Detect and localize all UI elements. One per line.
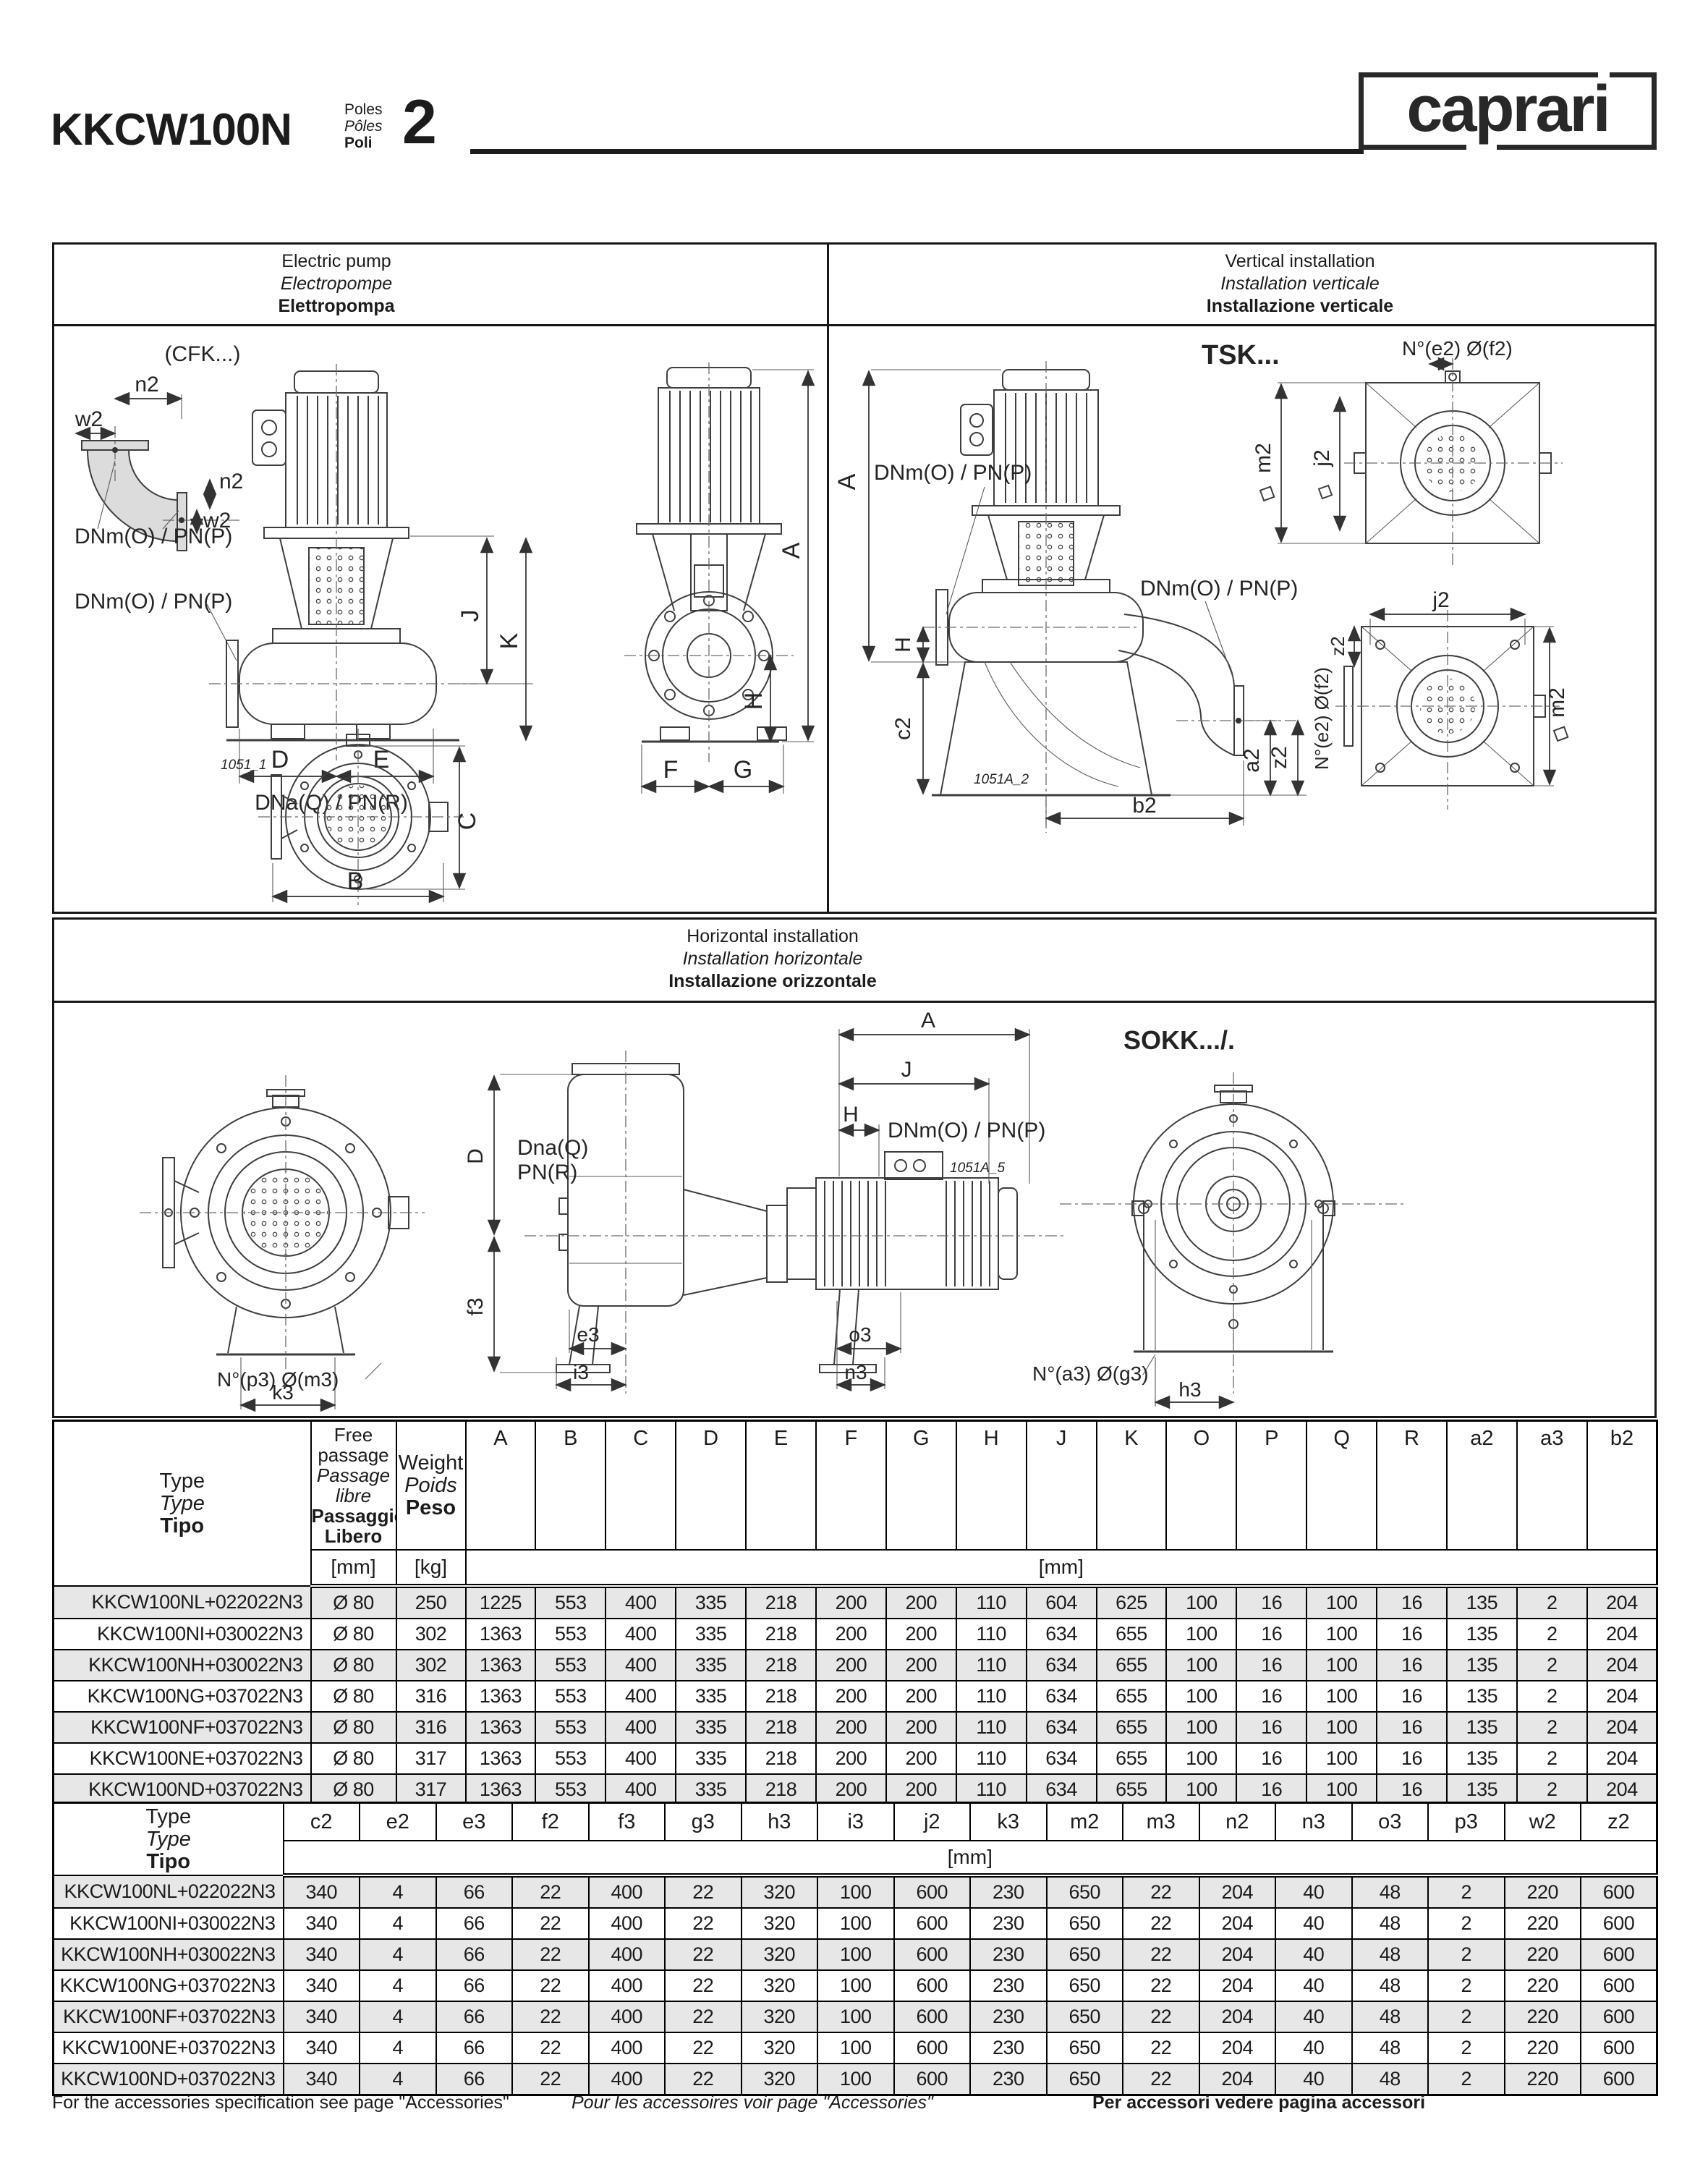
dim-cell: 204 (1199, 2001, 1276, 2032)
table2-body: KKCW100NL+022022N3 340 4 66 22 400 22 32… (54, 1875, 1657, 2095)
bolt-count-label-a3-g3: N°(a3) Ø(g3) (1032, 1362, 1149, 1385)
dim-cell: 100 (817, 1875, 894, 1908)
dim-cell: 204 (1199, 1908, 1276, 1939)
dim-cell: 2 (1517, 1774, 1587, 1806)
dim-cell: 2 (1517, 1586, 1587, 1619)
dim-cell: 22 (1123, 2001, 1199, 2032)
dim-cell: 400 (606, 1586, 676, 1619)
dim-cell: 600 (894, 1875, 971, 1908)
dim-cell: 1363 (466, 1650, 536, 1681)
poles-label-it: Poli (344, 135, 383, 151)
dim-cell: 100 (817, 1970, 894, 2001)
datasheet-page: KKCW100N Poles Pôles Poli 2 caprari Elec… (0, 0, 1708, 2180)
weight-it: Peso (397, 1497, 465, 1519)
dim-cell: 22 (665, 2032, 742, 2064)
dim-cell: 400 (589, 1875, 666, 1908)
dim-label-f3: f3 (464, 1297, 488, 1315)
dim-cell: 100 (1166, 1619, 1236, 1650)
unit-mm: [mm] (311, 1550, 396, 1586)
dim-cell: 110 (956, 1712, 1027, 1743)
dim-label-j2: j2 (1432, 588, 1449, 612)
col-header: w2 (1505, 1803, 1581, 1841)
dim-cell: 230 (970, 2032, 1047, 2064)
bolt-count-label-e2-f2: N°(e2) Ø(f2) (1402, 337, 1513, 360)
dim-label-c: C (454, 813, 481, 831)
dim-cell: 230 (970, 2064, 1047, 2095)
dim-cell: 48 (1352, 1875, 1429, 1908)
dim-cell: 22 (1123, 2032, 1199, 2064)
dim-cell: 655 (1097, 1650, 1167, 1681)
weight-cell: 302 (396, 1619, 466, 1650)
flange-plan-view-top (1260, 358, 1563, 565)
dim-cell: 2 (1428, 1875, 1505, 1908)
free-passage-cell: Ø 80 (311, 1712, 396, 1743)
dim-cell: 4 (360, 1970, 436, 2001)
dim-cell: 204 (1587, 1712, 1657, 1743)
type-header-fr: Type (54, 1493, 310, 1515)
dim-cell: 335 (676, 1650, 746, 1681)
dim-cell: 100 (1307, 1712, 1377, 1743)
dim-cell: 16 (1377, 1650, 1447, 1681)
dim-cell: 200 (886, 1712, 956, 1743)
weight-cell: 302 (396, 1650, 466, 1681)
dim-cell: 335 (676, 1712, 746, 1743)
dim-cell: 335 (676, 1681, 746, 1712)
type-header-en: Type (54, 1806, 283, 1828)
dim-cell: 200 (886, 1774, 956, 1806)
pump-type-cell: KKCW100NF+037022N3 (54, 2001, 284, 2032)
dim-cell: 600 (894, 1908, 971, 1939)
free-passage-en: Free (312, 1425, 396, 1445)
dim-cell: 218 (746, 1681, 816, 1712)
dim-label-h: H (891, 637, 915, 653)
dim-label-a: A (833, 473, 861, 490)
free-passage-it: Passaggio (312, 1506, 396, 1526)
table-row: KKCW100NF+037022N3 Ø 80 316 1363 553 400… (54, 1712, 1657, 1743)
dim-cell: 320 (742, 2032, 818, 2064)
table-row: KKCW100NL+022022N3 Ø 80 250 1225 553 400… (54, 1586, 1657, 1619)
col-header: k3 (970, 1803, 1047, 1841)
dim-cell: 200 (816, 1650, 886, 1681)
dim-cell: 400 (606, 1681, 676, 1712)
dim-cell: 100 (1166, 1743, 1236, 1774)
col-header: o3 (1352, 1803, 1429, 1841)
col-header: h3 (742, 1803, 818, 1841)
dim-cell: 230 (970, 2001, 1047, 2032)
poles-label-en: Poles (344, 101, 383, 118)
caprari-logo-text: caprari (1364, 77, 1652, 141)
dim-cell: 335 (676, 1619, 746, 1650)
pump-type-cell: KKCW100ND+037022N3 (54, 1774, 311, 1806)
free-passage-fr: Passage (312, 1465, 396, 1485)
caprari-logo: caprari (1359, 72, 1657, 150)
type-header-it: Tipo (54, 1515, 310, 1538)
dnm-pn-label: DNm(O) / PN(P) (75, 525, 232, 548)
dim-cell: 200 (886, 1681, 956, 1712)
dim-cell: 650 (1047, 2001, 1123, 2032)
dim-label-m2: m2 (1545, 687, 1569, 718)
dim-label-h: H (740, 692, 768, 711)
dim-label-b: B (347, 868, 364, 895)
table-row: KKCW100NE+037022N3 340 4 66 22 400 22 32… (54, 2032, 1657, 2064)
vertical-installation-drawing: TSK... (829, 326, 1654, 912)
weight-cell: 317 (396, 1774, 466, 1806)
dim-cell: 204 (1199, 2064, 1276, 2095)
dim-cell: 218 (746, 1774, 816, 1806)
dim-cell: 204 (1587, 1650, 1657, 1681)
dim-cell: 100 (817, 2001, 894, 2032)
dim-cell: 40 (1275, 1908, 1352, 1939)
dim-cell: 110 (956, 1743, 1027, 1774)
dim-cell: 1225 (466, 1586, 536, 1619)
dim-cell: 650 (1047, 1908, 1123, 1939)
dim-cell: 100 (1307, 1681, 1377, 1712)
dim-cell: 135 (1447, 1650, 1517, 1681)
col-header: z2 (1581, 1803, 1657, 1841)
dim-cell: 2 (1517, 1619, 1587, 1650)
table1-body: KKCW100NL+022022N3 Ø 80 250 1225 553 400… (54, 1586, 1657, 1806)
dim-cell: 110 (956, 1586, 1027, 1619)
dim-cell: 40 (1275, 2001, 1352, 2032)
dim-cell: 135 (1447, 1743, 1517, 1774)
dim-cell: 340 (284, 1908, 360, 1939)
dim-cell: 600 (894, 2032, 971, 2064)
dim-cell: 48 (1352, 2064, 1429, 2095)
col-header: Q (1307, 1421, 1377, 1551)
dim-cell: 100 (817, 1908, 894, 1939)
poles-label-fr: Pôles (344, 118, 383, 135)
col-header: H (956, 1421, 1027, 1551)
dim-cell: 22 (1123, 2064, 1199, 2095)
dim-cell: 22 (665, 1908, 742, 1939)
pump-type-cell: KKCW100NL+022022N3 (54, 1586, 311, 1619)
front-view (140, 1075, 425, 1409)
dim-cell: 204 (1587, 1681, 1657, 1712)
dim-cell: 40 (1275, 1970, 1352, 2001)
col-header: j2 (894, 1803, 971, 1841)
diagram-block-top: Electric pump Electropompe Elettropompa … (52, 242, 1657, 914)
col-header: F (816, 1421, 886, 1551)
dim-label-k3: k3 (272, 1381, 294, 1404)
poles-value: 2 (402, 87, 437, 158)
electric-pump-title-en: Electric pump (54, 250, 619, 273)
logo-border-gap (1466, 145, 1497, 150)
dim-cell: 634 (1027, 1650, 1097, 1681)
logo-border-gap (1598, 72, 1610, 77)
dim-cell: 100 (1307, 1774, 1377, 1806)
dim-cell: 340 (284, 1875, 360, 1908)
dim-cell: 2 (1428, 1908, 1505, 1939)
dim-label-c2: c2 (891, 717, 915, 740)
dim-cell: 22 (1123, 1875, 1199, 1908)
dim-cell: 16 (1236, 1650, 1307, 1681)
dim-cell: 100 (1307, 1619, 1377, 1650)
dim-cell: 400 (606, 1743, 676, 1774)
dim-cell: 553 (535, 1774, 606, 1806)
diagram-block-bottom: Horizontal installation Installation hor… (52, 917, 1657, 1418)
table-row: KKCW100NG+037022N3 Ø 80 316 1363 553 400… (54, 1681, 1657, 1712)
dim-cell: 66 (436, 1970, 513, 2001)
dim-cell: 100 (817, 2064, 894, 2095)
dim-cell: 200 (886, 1619, 956, 1650)
dim-cell: 22 (512, 2001, 589, 2032)
diagram-block-top-header: Electric pump Electropompe Elettropompa … (54, 245, 1654, 326)
dim-cell: 218 (746, 1650, 816, 1681)
pump-side-view (624, 362, 814, 794)
horizontal-title-it: Installazione orizzontale (54, 970, 1491, 993)
dim-cell: 135 (1447, 1619, 1517, 1650)
vertical-installation-title: Vertical installation Installation verti… (827, 245, 1654, 324)
dim-cell: 4 (360, 1908, 436, 1939)
dim-cell: 110 (956, 1619, 1027, 1650)
dim-cell: 655 (1097, 1743, 1167, 1774)
table-row: KKCW100NH+030022N3 340 4 66 22 400 22 32… (54, 1939, 1657, 1970)
dim-cell: 634 (1027, 1619, 1097, 1650)
free-passage-cell: Ø 80 (311, 1774, 396, 1806)
dim-cell: 22 (512, 1875, 589, 1908)
col-header: C (606, 1421, 676, 1551)
dim-cell: 200 (816, 1619, 886, 1650)
dim-cell: 634 (1027, 1681, 1097, 1712)
dim-cell: 650 (1047, 2064, 1123, 2095)
dim-cell: 2 (1428, 1970, 1505, 2001)
dim-cell: 200 (886, 1743, 956, 1774)
dim-cell: 22 (665, 2064, 742, 2095)
electric-pump-title-fr: Electropompe (54, 273, 619, 295)
drawing-ref-1051a-2: 1051A_2 (974, 772, 1029, 787)
dim-cell: 1363 (466, 1774, 536, 1806)
dim-cell: 340 (284, 1970, 360, 2001)
sokk-label: SOKK.../. (1123, 1025, 1235, 1055)
dim-cell: 204 (1587, 1774, 1657, 1806)
dim-cell: 22 (665, 1970, 742, 2001)
dim-cell: 110 (956, 1681, 1027, 1712)
col-header: R (1377, 1421, 1447, 1551)
dim-label-f: F (663, 756, 679, 784)
col-header: n3 (1275, 1803, 1352, 1841)
vertical-title-en: Vertical installation (946, 250, 1654, 273)
dim-cell: 655 (1097, 1619, 1167, 1650)
dim-cell: 135 (1447, 1586, 1517, 1619)
drawing-ref-1051a-5: 1051A_5 (950, 1161, 1006, 1176)
bolt-count-label-e2-f2: N°(e2) Ø(f2) (1311, 667, 1333, 770)
dim-cell: 22 (512, 2064, 589, 2095)
dim-cell: 16 (1236, 1681, 1307, 1712)
dim-cell: 40 (1275, 2064, 1352, 2095)
col-header: E (746, 1421, 816, 1551)
dim-cell: 553 (535, 1712, 606, 1743)
pump-type-cell: KKCW100NE+037022N3 (54, 2032, 284, 2064)
pump-type-cell: KKCW100NI+030022N3 (54, 1619, 311, 1650)
dim-cell: 400 (606, 1650, 676, 1681)
dim-cell: 16 (1377, 1619, 1447, 1650)
poles-label-block: Poles Pôles Poli (344, 101, 383, 151)
dim-cell: 218 (746, 1586, 816, 1619)
dim-label-h3: h3 (1178, 1378, 1201, 1401)
dim-label-d: D (271, 746, 289, 773)
dim-cell: 600 (1581, 1875, 1657, 1908)
table-row: KKCW100NG+037022N3 340 4 66 22 400 22 32… (54, 1970, 1657, 2001)
weight-cell: 316 (396, 1681, 466, 1712)
horizontal-title: Horizontal installation Installation hor… (54, 920, 1654, 1003)
dim-cell: 4 (360, 2064, 436, 2095)
electric-pump-drawing: (CFK...) n2 w2 n2 w2 DNm(O) / (54, 326, 827, 912)
dim-cell: 4 (360, 1875, 436, 1908)
col-header: G (886, 1421, 956, 1551)
unit-kg: [kg] (396, 1550, 466, 1586)
dim-cell: 553 (535, 1619, 606, 1650)
dim-cell: 400 (589, 1970, 666, 2001)
dim-cell: 600 (894, 2064, 971, 2095)
dim-cell: 100 (1166, 1586, 1236, 1619)
dim-cell: 553 (535, 1681, 606, 1712)
dim-cell: 220 (1505, 1970, 1581, 2001)
dim-cell: 335 (676, 1774, 746, 1806)
dim-cell: 66 (436, 1908, 513, 1939)
pump-type-cell: KKCW100NL+022022N3 (54, 1875, 284, 1908)
col-header: D (676, 1421, 746, 1551)
pump-type-cell: KKCW100NF+037022N3 (54, 1712, 311, 1743)
dim-cell: 340 (284, 2064, 360, 2095)
free-passage-en: passage (312, 1445, 396, 1465)
dim-cell: 2 (1428, 2032, 1505, 2064)
dim-cell: 16 (1236, 1774, 1307, 1806)
dim-cell: 625 (1097, 1586, 1167, 1619)
dim-cell: 204 (1587, 1619, 1657, 1650)
pump-type-cell: KKCW100NG+037022N3 (54, 1681, 311, 1712)
electric-pump-title: Electric pump Electropompe Elettropompa (54, 245, 827, 324)
dim-cell: 220 (1505, 1875, 1581, 1908)
dim-cell: 204 (1199, 1875, 1276, 1908)
dim-cell: 2 (1428, 1939, 1505, 1970)
dim-cell: 110 (956, 1774, 1027, 1806)
dim-cell: 16 (1236, 1586, 1307, 1619)
dim-cell: 4 (360, 2032, 436, 2064)
weight-cell: 317 (396, 1743, 466, 1774)
free-passage-cell: Ø 80 (311, 1681, 396, 1712)
table-row: KKCW100ND+037022N3 340 4 66 22 400 22 32… (54, 2064, 1657, 2095)
dim-cell: 48 (1352, 2032, 1429, 2064)
dim-cell: 48 (1352, 1939, 1429, 1970)
dim-cell: 22 (512, 2032, 589, 2064)
pump-type-cell: KKCW100NH+030022N3 (54, 1939, 284, 1970)
dim-cell: 16 (1236, 1743, 1307, 1774)
pn-r-label: PN(R) (517, 1161, 577, 1184)
horizontal-title-fr: Installation horizontale (54, 948, 1491, 970)
unit-mm-span: [mm] (284, 1841, 1657, 1875)
dim-label-a: A (921, 1009, 935, 1032)
free-passage-cell: Ø 80 (311, 1650, 396, 1681)
dim-label-d: D (464, 1148, 488, 1164)
dim-label-z2: z2 (1327, 636, 1348, 656)
dim-cell: 16 (1377, 1712, 1447, 1743)
dim-cell: 100 (817, 2032, 894, 2064)
type-header-it: Tipo (54, 1851, 283, 1873)
col-header: O (1166, 1421, 1236, 1551)
dim-cell: 340 (284, 2032, 360, 2064)
dim-label-e3: e3 (577, 1323, 599, 1346)
dim-label-i3: i3 (573, 1361, 589, 1383)
dim-cell: 135 (1447, 1712, 1517, 1743)
free-passage-it: Libero (312, 1526, 396, 1546)
col-header: g3 (665, 1803, 742, 1841)
dim-cell: 553 (535, 1743, 606, 1774)
horizontal-title-en: Horizontal installation (54, 925, 1491, 948)
dim-cell: 320 (742, 1970, 818, 2001)
horizontal-installation-drawing: SOKK.../. (54, 1003, 1654, 1416)
dim-cell: 22 (665, 1875, 742, 1908)
dim-cell: 335 (676, 1586, 746, 1619)
dim-cell: 650 (1047, 1970, 1123, 2001)
dim-cell: 335 (676, 1743, 746, 1774)
dim-cell: 553 (535, 1586, 606, 1619)
dim-cell: 2 (1517, 1681, 1587, 1712)
weight-cell: 250 (396, 1586, 466, 1619)
dim-cell: 4 (360, 2001, 436, 2032)
dim-label-n2: n2 (219, 470, 243, 493)
dim-cell: 66 (436, 2001, 513, 2032)
dim-cell: 634 (1027, 1774, 1097, 1806)
dimensions-table-2: Type Type Tipo c2 e2 e3 f2 f3 g3 h3 i3 j… (52, 1802, 1658, 2096)
table-row: KKCW100NL+022022N3 340 4 66 22 400 22 32… (54, 1875, 1657, 1908)
dim-cell: 100 (1307, 1586, 1377, 1619)
dim-cell: 604 (1027, 1586, 1097, 1619)
dim-cell: 200 (816, 1743, 886, 1774)
dim-label-m2: m2 (1252, 443, 1275, 473)
dim-cell: 200 (886, 1586, 956, 1619)
page-title: KKCW100N (51, 104, 292, 156)
dim-cell: 600 (1581, 1939, 1657, 1970)
dim-cell: 110 (956, 1650, 1027, 1681)
dimensions-table-1: Type Type Tipo Free passage Passage libr… (52, 1420, 1658, 1807)
dim-cell: 220 (1505, 2064, 1581, 2095)
dim-label-j: J (901, 1058, 912, 1082)
dim-cell: 600 (1581, 1908, 1657, 1939)
dim-cell: 66 (436, 1939, 513, 1970)
col-header: i3 (817, 1803, 894, 1841)
dim-cell: 135 (1447, 1774, 1517, 1806)
table-row: KKCW100ND+037022N3 Ø 80 317 1363 553 400… (54, 1774, 1657, 1806)
dim-cell: 48 (1352, 2001, 1429, 2032)
flange-plan-view-bottom (1335, 610, 1568, 810)
dim-label-w2: w2 (75, 407, 103, 431)
dnm-pn-label: DNm(O) / PN(P) (874, 461, 1032, 485)
dim-cell: 40 (1275, 2032, 1352, 2064)
dim-label-n2: n2 (135, 373, 158, 396)
dim-cell: 16 (1377, 1586, 1447, 1619)
drawing-ref-1051-1: 1051_1 (221, 758, 266, 773)
dim-cell: 2 (1517, 1712, 1587, 1743)
dim-cell: 400 (589, 2032, 666, 2064)
dim-cell: 1363 (466, 1619, 536, 1650)
dim-label-b2: b2 (1132, 794, 1156, 818)
dim-cell: 16 (1236, 1712, 1307, 1743)
free-passage-header: Free passage Passage libre Passaggio Lib… (311, 1421, 396, 1551)
dim-cell: 600 (1581, 2064, 1657, 2095)
dnm-pn-label: DNm(O) / PN(P) (888, 1119, 1045, 1142)
dim-cell: 22 (1123, 1970, 1199, 2001)
dim-cell: 400 (606, 1712, 676, 1743)
weight-header: Weight Poids Peso (396, 1421, 466, 1551)
dim-cell: 204 (1587, 1586, 1657, 1619)
pump-type-cell: KKCW100NI+030022N3 (54, 1908, 284, 1939)
dim-label-n3: n3 (844, 1361, 867, 1383)
dim-label-j2: j2 (1310, 449, 1334, 467)
table-row: KKCW100NE+037022N3 Ø 80 317 1363 553 400… (54, 1743, 1657, 1774)
dim-cell: 66 (436, 1875, 513, 1908)
dim-cell: 220 (1505, 1908, 1581, 1939)
type-header-en: Type (54, 1470, 310, 1493)
